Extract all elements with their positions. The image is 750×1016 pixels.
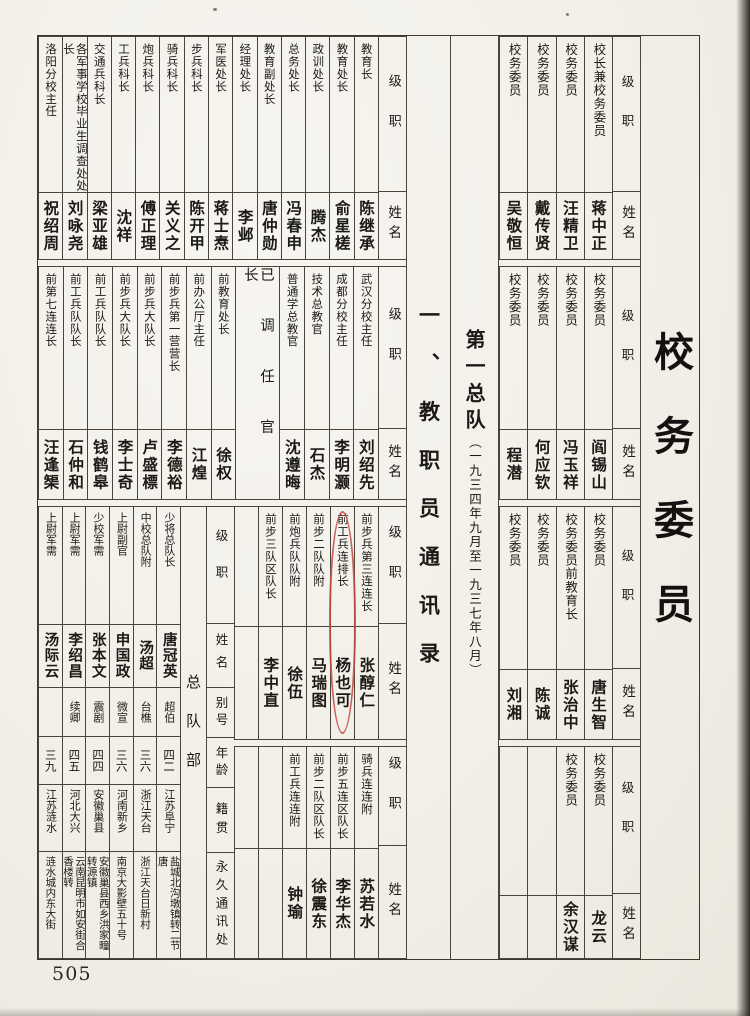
hq-member-column: 上尉军需 李绍昌 续卿 四五 河北大兴 云南昆明市如安街合香楼转 — [62, 507, 86, 958]
scan-bottom-shadow — [0, 1008, 750, 1016]
band-header-column: 级职 姓名 — [612, 747, 640, 958]
member-origin: 江苏涟水 — [39, 785, 62, 852]
bottom-section: 级职 姓名 前步兵第三连连长 张醇仁 前工兵连排长 杨也可 — [38, 506, 406, 959]
scan-speck — [566, 13, 569, 16]
member-rank: 上尉军需 — [39, 507, 62, 625]
committee-band-4: 级职 姓名 校务委员 龙云 校务委员 余汉谋 — [499, 746, 640, 959]
staff-band-3: 级职 姓名 前步兵第三连连长 张醇仁 前工兵连排长 杨也可 — [234, 506, 406, 740]
committee-band-3: 级职 姓名 校务委员 唐生智 校务委员前教育长 张治中 — [499, 506, 640, 740]
entry-name: 唐生智 — [585, 670, 612, 739]
member-address: 盐城北沟墩镇转二节唐 — [157, 852, 180, 958]
entry-name: 李明灏 — [330, 430, 354, 499]
entry-name: 陈诚 — [528, 670, 555, 739]
scan-speck — [213, 8, 217, 11]
directory-entry-column: 校务委员 吴敬恒 — [499, 37, 527, 259]
entry-rank — [528, 747, 555, 896]
entry-name: 汪逢榘 — [39, 430, 63, 499]
entry-name: 沈遵晦 — [280, 430, 304, 499]
rank-header: 级职 — [613, 37, 640, 192]
member-origin: 浙江天台 — [134, 785, 157, 852]
directory-entry-column: 步兵科长 陈开甲 — [184, 37, 208, 259]
entry-rank: 前办公厅主任 — [187, 267, 211, 430]
directory-entry-column: 武汉分校主任 刘绍先 — [353, 267, 378, 499]
band-header-column: 级职 姓名 — [378, 747, 406, 958]
member-address: 南京大影壁五十号 — [110, 852, 133, 958]
member-name: 汤际云 — [39, 625, 62, 688]
entry-rank: 洛阳分校主任 — [39, 37, 62, 193]
directory-entry-column: 校务委员 刘湘 — [499, 507, 527, 739]
entry-rank: 前步二队区队长 — [307, 747, 330, 849]
entry-name: 苏若水 — [355, 849, 378, 958]
entry-rank: 前步兵第三连连长 — [355, 507, 378, 627]
staff-band-4: 级职 姓名 骑兵连连附 苏若水 — [234, 746, 406, 959]
entry-name: 蒋中正 — [585, 193, 612, 259]
entry-name: 余汉谋 — [557, 896, 584, 958]
entry-rank: 校务委员 — [528, 507, 555, 670]
unit-dates: （一九三四年九月至一九三七年八月） — [467, 435, 482, 677]
entry-name — [500, 896, 527, 958]
member-rank: 少校军需 — [86, 507, 109, 625]
hq-member-column: 少校军需 张本文 震剧 四四 安徽巢县 安徽巢县西乡洪家疃转源镇 — [85, 507, 109, 958]
directory-entry-column: 校务委员 唐生智 — [584, 507, 612, 739]
entry-rank: 工兵科长 — [112, 37, 135, 193]
directory-entry-column: 校务委员 冯玉祥 — [556, 267, 584, 499]
hq-member-column: 上尉副官 申国政 微宣 三六 河南新乡 南京大影壁五十号 — [109, 507, 133, 958]
hq-member-column: 上尉军需 汤际云 三九 江苏涟水 涟水城内东大街 — [38, 507, 62, 958]
directory-entry-column: 校务委员 程潜 — [499, 267, 527, 499]
directory-entry-column-circled: 前工兵连排长 杨也可 — [330, 507, 354, 739]
entry-name: 张治中 — [557, 670, 584, 739]
entry-name: 唐仲勋 — [258, 193, 281, 259]
member-origin: 江苏阜宁 — [157, 785, 180, 852]
entry-name: 戴传贤 — [528, 193, 555, 259]
rank-header: 级职 — [379, 747, 406, 846]
member-rank: 少将总队长 — [157, 507, 180, 625]
empty-entry-column — [234, 507, 258, 739]
directory-entry-column — [234, 747, 258, 958]
hq-header-column: 级职 姓名 别号 年龄 籍贯 永久通讯处 — [206, 507, 234, 958]
entry-rank: 骑兵连连附 — [355, 747, 378, 849]
member-name: 张本文 — [86, 625, 109, 688]
directory-entry-column — [527, 747, 555, 958]
member-name: 申国政 — [110, 625, 133, 688]
member-rank: 上尉军需 — [63, 507, 86, 625]
directory-entry-column: 教育处长 俞星槎 — [329, 37, 353, 259]
entry-name: 沈祥 — [112, 193, 135, 259]
directory-entry-column: 前工兵队队长 钱鹤皋 — [87, 267, 112, 499]
rank-header: 级职 — [613, 507, 640, 669]
entry-name: 徐震东 — [307, 849, 330, 958]
directory-entry-column: 校务委员前教育长 张治中 — [556, 507, 584, 739]
band-header-column: 级职 姓名 — [612, 507, 640, 739]
member-address: 涟水城内东大街 — [39, 852, 62, 958]
entry-rank: 前第七连连长 — [39, 267, 63, 430]
directory-entry-column: 前工兵连连附 钟瑜 — [282, 747, 306, 958]
entry-rank: 教育处长 — [330, 37, 353, 193]
directory-entry-column: 教育副处长 唐仲勋 — [257, 37, 281, 259]
entry-name: 李华杰 — [331, 849, 354, 958]
directory-entry-column: 经理处长 李邺 — [232, 37, 256, 259]
entry-rank: 前工兵队队长 — [88, 267, 112, 430]
directory-entry-column: 前步二队区队长 徐震东 — [306, 747, 330, 958]
member-alias: 续卿 — [63, 688, 86, 737]
entry-rank: 政训处长 — [306, 37, 329, 193]
directory-entry-column: 前步二队队附 马瑞图 — [306, 507, 330, 739]
former-officer-bands: 级职 姓名 前步兵第三连连长 张醇仁 前工兵连排长 杨也可 — [234, 506, 406, 959]
entry-name: 龙云 — [585, 896, 612, 958]
unit-name: 第一总队 — [462, 329, 486, 435]
directory-entry-column: 骑兵科长 关义之 — [159, 37, 183, 259]
member-origin: 安徽巢县 — [86, 785, 109, 852]
entry-name — [528, 896, 555, 958]
entry-name: 吴敬恒 — [500, 193, 527, 259]
transferred-officers-label: 已调任官长 — [236, 267, 279, 499]
directory-entry-column: 各军事学校毕业生调查处处长 刘咏尧 — [62, 37, 86, 259]
directory-entry-column: 前步兵第一营营长 李德裕 — [161, 267, 186, 499]
entry-name: 祝绍周 — [39, 193, 62, 259]
entry-rank: 各军事学校毕业生调查处处长 — [63, 37, 86, 193]
entry-name: 刘绍先 — [354, 430, 378, 499]
directory-entry-column: 前第七连连长 汪逢榘 — [38, 267, 63, 499]
directory-entry-column: 校务委员 何应钦 — [527, 267, 555, 499]
directory-entry-column: 前工兵队队长 石仲和 — [63, 267, 88, 499]
entry-name — [235, 627, 258, 739]
entry-name: 陈开甲 — [185, 193, 208, 259]
entry-name: 徐权 — [212, 430, 236, 499]
band-header-column: 级职 姓名 — [612, 267, 640, 499]
name-header: 姓名 — [207, 624, 234, 689]
committee-table: 级职 姓名 校长兼校务委员 蒋中正 校务委员 汪精卫 — [498, 36, 640, 959]
address-header: 永久通讯处 — [207, 853, 234, 958]
entry-rank: 校务委员 — [557, 267, 584, 430]
entry-name: 李士奇 — [113, 430, 137, 499]
entry-name: 石杰 — [305, 430, 329, 499]
member-name: 李绍昌 — [63, 625, 86, 688]
name-header: 姓名 — [613, 669, 640, 739]
name-header: 姓名 — [379, 192, 406, 259]
entry-rank: 校务委员 — [585, 507, 612, 670]
member-origin: 河南新乡 — [110, 785, 133, 852]
member-name: 汤超 — [134, 625, 157, 688]
member-age: 四二 — [157, 737, 180, 786]
scan-edge-shadow — [736, 0, 750, 1016]
entry-name: 关义之 — [160, 193, 183, 259]
directory-entry-column — [499, 747, 527, 958]
entry-rank: 前步兵大队长 — [113, 267, 137, 430]
member-rank: 上尉副官 — [110, 507, 133, 625]
entry-rank: 校务委员 — [500, 507, 527, 670]
entry-name: 江煌 — [187, 430, 211, 499]
entry-rank: 校务委员前教育长 — [557, 507, 584, 670]
entry-rank: 炮兵科长 — [136, 37, 159, 193]
scanned-page: 校务委员 级职 姓名 校长兼校务委员 蒋中正 — [0, 0, 750, 1016]
entry-rank: 前步二队队附 — [307, 507, 330, 627]
hq-table: 级职 姓名 别号 年龄 籍贯 永久通讯处 总队部 少将总队 — [38, 506, 234, 959]
entry-name: 俞星槎 — [330, 193, 353, 259]
section-title: 校务委员 — [641, 36, 699, 959]
entry-rank — [235, 507, 258, 627]
directory-entry-column: 校务委员 龙云 — [584, 747, 612, 958]
directory-entry-column: 成都分校主任 李明灏 — [329, 267, 354, 499]
unit-title-column: 第一总队（一九三四年九月至一九三七年八月） — [450, 36, 498, 959]
rank-header: 级职 — [379, 507, 406, 624]
entry-name: 梁亚雄 — [88, 193, 111, 259]
directory-entry-column: 政训处长 腾杰 — [305, 37, 329, 259]
entry-name: 汪精卫 — [557, 193, 584, 259]
directory-entry-column: 前步五连区队长 李华杰 — [330, 747, 354, 958]
entry-rank: 校务委员 — [557, 37, 584, 193]
entry-name: 钟瑜 — [283, 849, 306, 958]
section-title-column: 校务委员 — [640, 36, 699, 959]
staff-band-2: 级职 姓名 武汉分校主任 刘绍先 成都分校主任 李明灏 — [38, 266, 406, 500]
list-title: 一、教职员通讯录 — [414, 36, 444, 959]
member-age: 三九 — [39, 737, 62, 786]
name-header: 姓名 — [379, 624, 406, 739]
directory-entry-column: 前教育处长 徐权 — [211, 267, 236, 499]
directory-entry-column: 前步兵第三连连长 张醇仁 — [354, 507, 378, 739]
directory-entry-column: 校长兼校务委员 蒋中正 — [584, 37, 612, 259]
directory-entry-column: 校务委员 汪精卫 — [556, 37, 584, 259]
entry-name: 傅正理 — [136, 193, 159, 259]
band-header-column: 级职 姓名 — [378, 267, 406, 499]
directory-entry-column: 校务委员 阎锡山 — [584, 267, 612, 499]
entry-name: 阎锡山 — [585, 430, 612, 499]
entry-rank: 前步五连区队长 — [331, 747, 354, 849]
member-age: 四五 — [63, 737, 86, 786]
member-address: 安徽巢县西乡洪家疃转源镇 — [86, 852, 109, 958]
band-header-column: 级职 姓名 — [378, 37, 406, 259]
entry-rank: 校务委员 — [528, 37, 555, 193]
entry-name: 李中直 — [259, 627, 282, 739]
directory-entry-column: 校务委员 余汉谋 — [556, 747, 584, 958]
entry-rank: 校务委员 — [585, 747, 612, 896]
member-address: 浙江天台日新村 — [134, 852, 157, 958]
directory-entry-column: 前步三队区队长 李中直 — [258, 507, 282, 739]
directory-entry-column: 前办公厅主任 江煌 — [186, 267, 211, 499]
member-rank: 中校总队附 — [134, 507, 157, 625]
member-alias: 震剧 — [86, 688, 109, 737]
entry-rank — [500, 747, 527, 896]
entry-name: 李德裕 — [162, 430, 186, 499]
member-origin: 河北大兴 — [63, 785, 86, 852]
age-header: 年龄 — [207, 738, 234, 788]
entry-rank: 前炮兵队队附 — [283, 507, 306, 627]
entry-rank: 步兵科长 — [185, 37, 208, 193]
unit-title: 第一总队（一九三四年九月至一九三七年八月） — [460, 36, 489, 959]
entry-rank: 前工兵连排长 — [331, 507, 354, 627]
name-header: 姓名 — [613, 429, 640, 499]
committee-band-1: 级职 姓名 校长兼校务委员 蒋中正 校务委员 汪精卫 — [499, 36, 640, 260]
entry-rank: 军医处长 — [209, 37, 232, 193]
directory-entry-column: 教育长 陈继承 — [354, 37, 378, 259]
entry-rank: 武汉分校主任 — [354, 267, 378, 430]
directory-entry-column: 交通兵科长 梁亚雄 — [87, 37, 111, 259]
directory-entry-column: 普通学总教官 沈遵晦 — [279, 267, 304, 499]
entry-name: 张醇仁 — [355, 627, 378, 739]
entry-rank: 校务委员 — [528, 267, 555, 430]
member-address: 云南昆明市如安街合香楼转 — [63, 852, 86, 958]
directory-entry-column: 总务处长 冯春申 — [281, 37, 305, 259]
entry-rank: 交通兵科长 — [88, 37, 111, 193]
entry-name: 马瑞图 — [307, 627, 330, 739]
entry-rank: 校务委员 — [585, 267, 612, 430]
entry-rank: 总务处长 — [282, 37, 305, 193]
band-header-column: 级职 姓名 — [378, 507, 406, 739]
member-alias: 台樵 — [134, 688, 157, 737]
member-alias: 微宣 — [110, 688, 133, 737]
directory-table: 校务委员 级职 姓名 校长兼校务委员 蒋中正 — [37, 35, 700, 960]
member-alias: 超伯 — [157, 688, 180, 737]
page-number: 505 — [52, 963, 92, 985]
hq-member-column: 中校总队附 汤超 台樵 三六 浙江天台 浙江天台日新村 — [133, 507, 157, 958]
directory-entry-column: 前炮兵队队附 徐伍 — [282, 507, 306, 739]
entry-name — [259, 849, 282, 958]
alias-header: 别号 — [207, 688, 234, 738]
directory-entry-column: 工兵科长 沈祥 — [111, 37, 135, 259]
entry-rank: 前步兵第一营营长 — [162, 267, 186, 430]
hq-member-column: 少将总队长 唐冠英 超伯 四二 江苏阜宁 盐城北沟墩镇转二节唐 — [156, 507, 180, 958]
directory-entry-column: 校务委员 戴传贤 — [527, 37, 555, 259]
transferred-officers-label-column: 已调任官长 — [235, 267, 279, 499]
entry-name: 石仲和 — [64, 430, 88, 499]
directory-entry-column: 前步兵大队长 李士奇 — [112, 267, 137, 499]
directory-entry-column — [258, 747, 282, 958]
entry-rank: 前教育处长 — [212, 267, 236, 430]
entry-rank: 校务委员 — [500, 37, 527, 193]
entry-name: 程潜 — [500, 430, 527, 499]
hq-label: 总队部 — [181, 507, 206, 958]
directory-entry-column: 骑兵连连附 苏若水 — [354, 747, 378, 958]
entry-name: 卢盛標 — [138, 430, 162, 499]
member-name: 唐冠英 — [157, 625, 180, 688]
entry-name — [235, 849, 258, 958]
rank-header: 级职 — [379, 37, 406, 192]
rank-header: 级职 — [207, 507, 234, 624]
directory-entry-column: 校务委员 陈诚 — [527, 507, 555, 739]
entry-name: 冯春申 — [282, 193, 305, 259]
band-header-column: 级职 姓名 — [612, 37, 640, 259]
entry-rank: 教育副处长 — [258, 37, 281, 193]
entry-name: 何应钦 — [528, 430, 555, 499]
entry-rank: 经理处长 — [233, 37, 256, 193]
entry-name: 刘咏尧 — [63, 193, 86, 259]
origin-header: 籍贯 — [207, 788, 234, 853]
entry-rank: 成都分校主任 — [330, 267, 354, 430]
directory-entry-column: 前步兵大队长 卢盛標 — [137, 267, 162, 499]
entry-rank: 前步三队区队长 — [259, 507, 282, 627]
directory-entry-column: 炮兵科长 傅正理 — [135, 37, 159, 259]
entry-rank: 校长兼校务委员 — [585, 37, 612, 193]
entry-name: 徐伍 — [283, 627, 306, 739]
hq-label-column: 总队部 — [180, 507, 206, 958]
entry-rank: 前工兵队队长 — [64, 267, 88, 430]
entry-name: 钱鹤皋 — [88, 430, 112, 499]
name-header: 姓名 — [613, 894, 640, 958]
member-age: 三六 — [110, 737, 133, 786]
member-age: 四四 — [86, 737, 109, 786]
entry-rank: 技术总教官 — [305, 267, 329, 430]
rank-header: 级职 — [613, 747, 640, 894]
entry-rank: 前工兵连连附 — [283, 747, 306, 849]
name-header: 姓名 — [379, 429, 406, 499]
rank-header: 级职 — [613, 267, 640, 429]
staff-table: 级职 姓名 教育长 陈继承 教育处长 俞星槎 — [38, 36, 406, 959]
entry-rank: 骑兵科长 — [160, 37, 183, 193]
member-alias — [39, 688, 62, 737]
entry-rank: 前步兵大队长 — [138, 267, 162, 430]
directory-entry-column: 洛阳分校主任 祝绍周 — [38, 37, 62, 259]
entry-name: 腾杰 — [306, 193, 329, 259]
entry-name: 冯玉祥 — [557, 430, 584, 499]
directory-entry-column: 技术总教官 石杰 — [304, 267, 329, 499]
entry-name: 陈继承 — [355, 193, 378, 259]
member-age: 三六 — [134, 737, 157, 786]
committee-band-2: 级职 姓名 校务委员 阎锡山 校务委员 冯玉祥 — [499, 266, 640, 500]
staff-band-1: 级职 姓名 教育长 陈继承 教育处长 俞星槎 — [38, 36, 406, 260]
entry-rank — [259, 747, 282, 849]
name-header: 姓名 — [379, 846, 406, 958]
directory-entry-column: 军医处长 蒋士焘 — [208, 37, 232, 259]
entry-name: 李邺 — [233, 193, 256, 259]
entry-rank: 普通学总教官 — [280, 267, 304, 430]
name-header: 姓名 — [613, 192, 640, 259]
entry-rank: 校务委员 — [500, 267, 527, 430]
rank-header: 级职 — [379, 267, 406, 429]
entry-name: 杨也可 — [331, 627, 354, 739]
list-title-column: 一、教职员通讯录 — [406, 36, 450, 959]
entry-name: 蒋士焘 — [209, 193, 232, 259]
entry-rank — [235, 747, 258, 849]
entry-name: 刘湘 — [500, 670, 527, 739]
entry-rank: 教育长 — [355, 37, 378, 193]
entry-rank: 校务委员 — [557, 747, 584, 896]
